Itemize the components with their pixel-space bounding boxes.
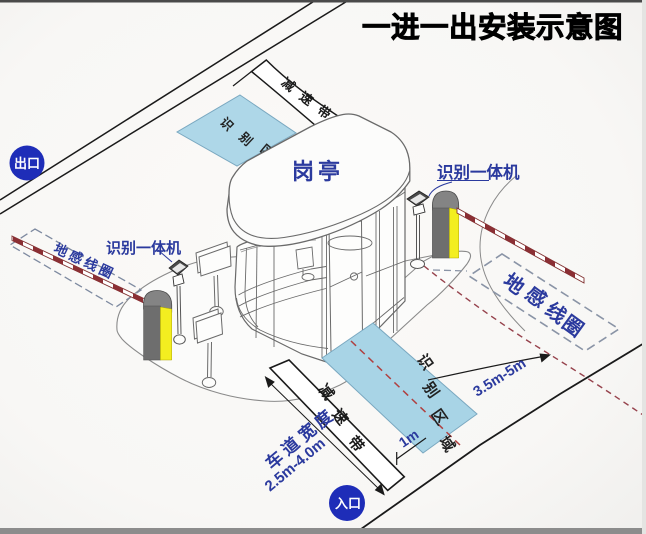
svg-text:岗亭: 岗亭: [292, 159, 344, 184]
svg-text:识别一体机: 识别一体机: [106, 239, 181, 257]
svg-text:出口: 出口: [14, 156, 40, 171]
svg-text:识别一体机: 识别一体机: [437, 162, 520, 182]
svg-text:一进一出安装示意图: 一进一出安装示意图: [362, 11, 623, 44]
svg-text:入口: 入口: [335, 496, 361, 511]
